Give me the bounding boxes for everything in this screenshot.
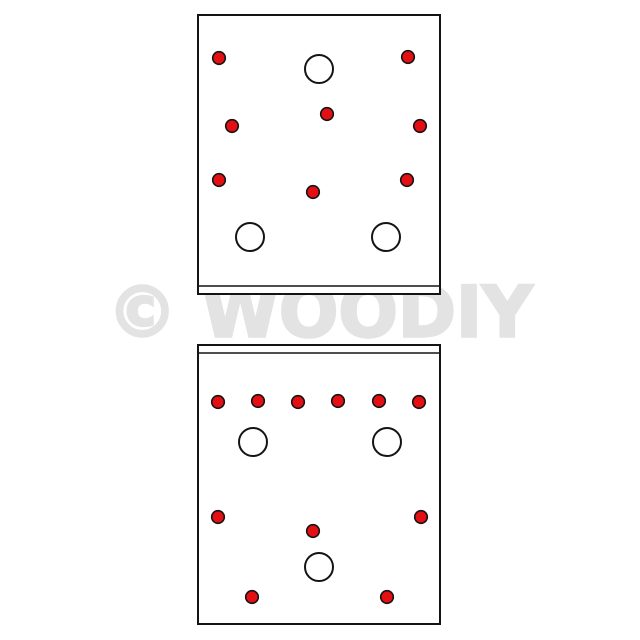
top-plate-group xyxy=(198,15,440,294)
small-hole xyxy=(212,396,225,409)
small-hole xyxy=(226,120,239,133)
large-hole xyxy=(373,428,401,456)
large-hole xyxy=(372,223,400,251)
small-hole xyxy=(213,174,226,187)
small-hole xyxy=(373,395,386,408)
small-hole xyxy=(332,395,345,408)
small-hole xyxy=(413,396,426,409)
small-hole xyxy=(246,591,259,604)
small-hole xyxy=(401,174,414,187)
small-hole xyxy=(381,591,394,604)
small-hole xyxy=(307,525,320,538)
large-hole xyxy=(305,55,333,83)
large-hole xyxy=(305,553,333,581)
small-hole xyxy=(414,120,427,133)
small-hole xyxy=(321,108,334,121)
large-hole xyxy=(236,223,264,251)
bottom-plate-group xyxy=(198,345,440,624)
small-hole xyxy=(415,511,428,524)
small-hole xyxy=(213,52,226,65)
bracket-plates-diagram xyxy=(0,0,640,640)
small-hole xyxy=(212,511,225,524)
page: { "watermark": { "text": "© WOODIY", "co… xyxy=(0,0,640,640)
small-hole xyxy=(292,396,305,409)
small-hole xyxy=(252,395,265,408)
bottom-plate-outline xyxy=(198,345,440,624)
small-hole xyxy=(402,51,415,64)
small-hole xyxy=(307,186,320,199)
large-hole xyxy=(239,428,267,456)
